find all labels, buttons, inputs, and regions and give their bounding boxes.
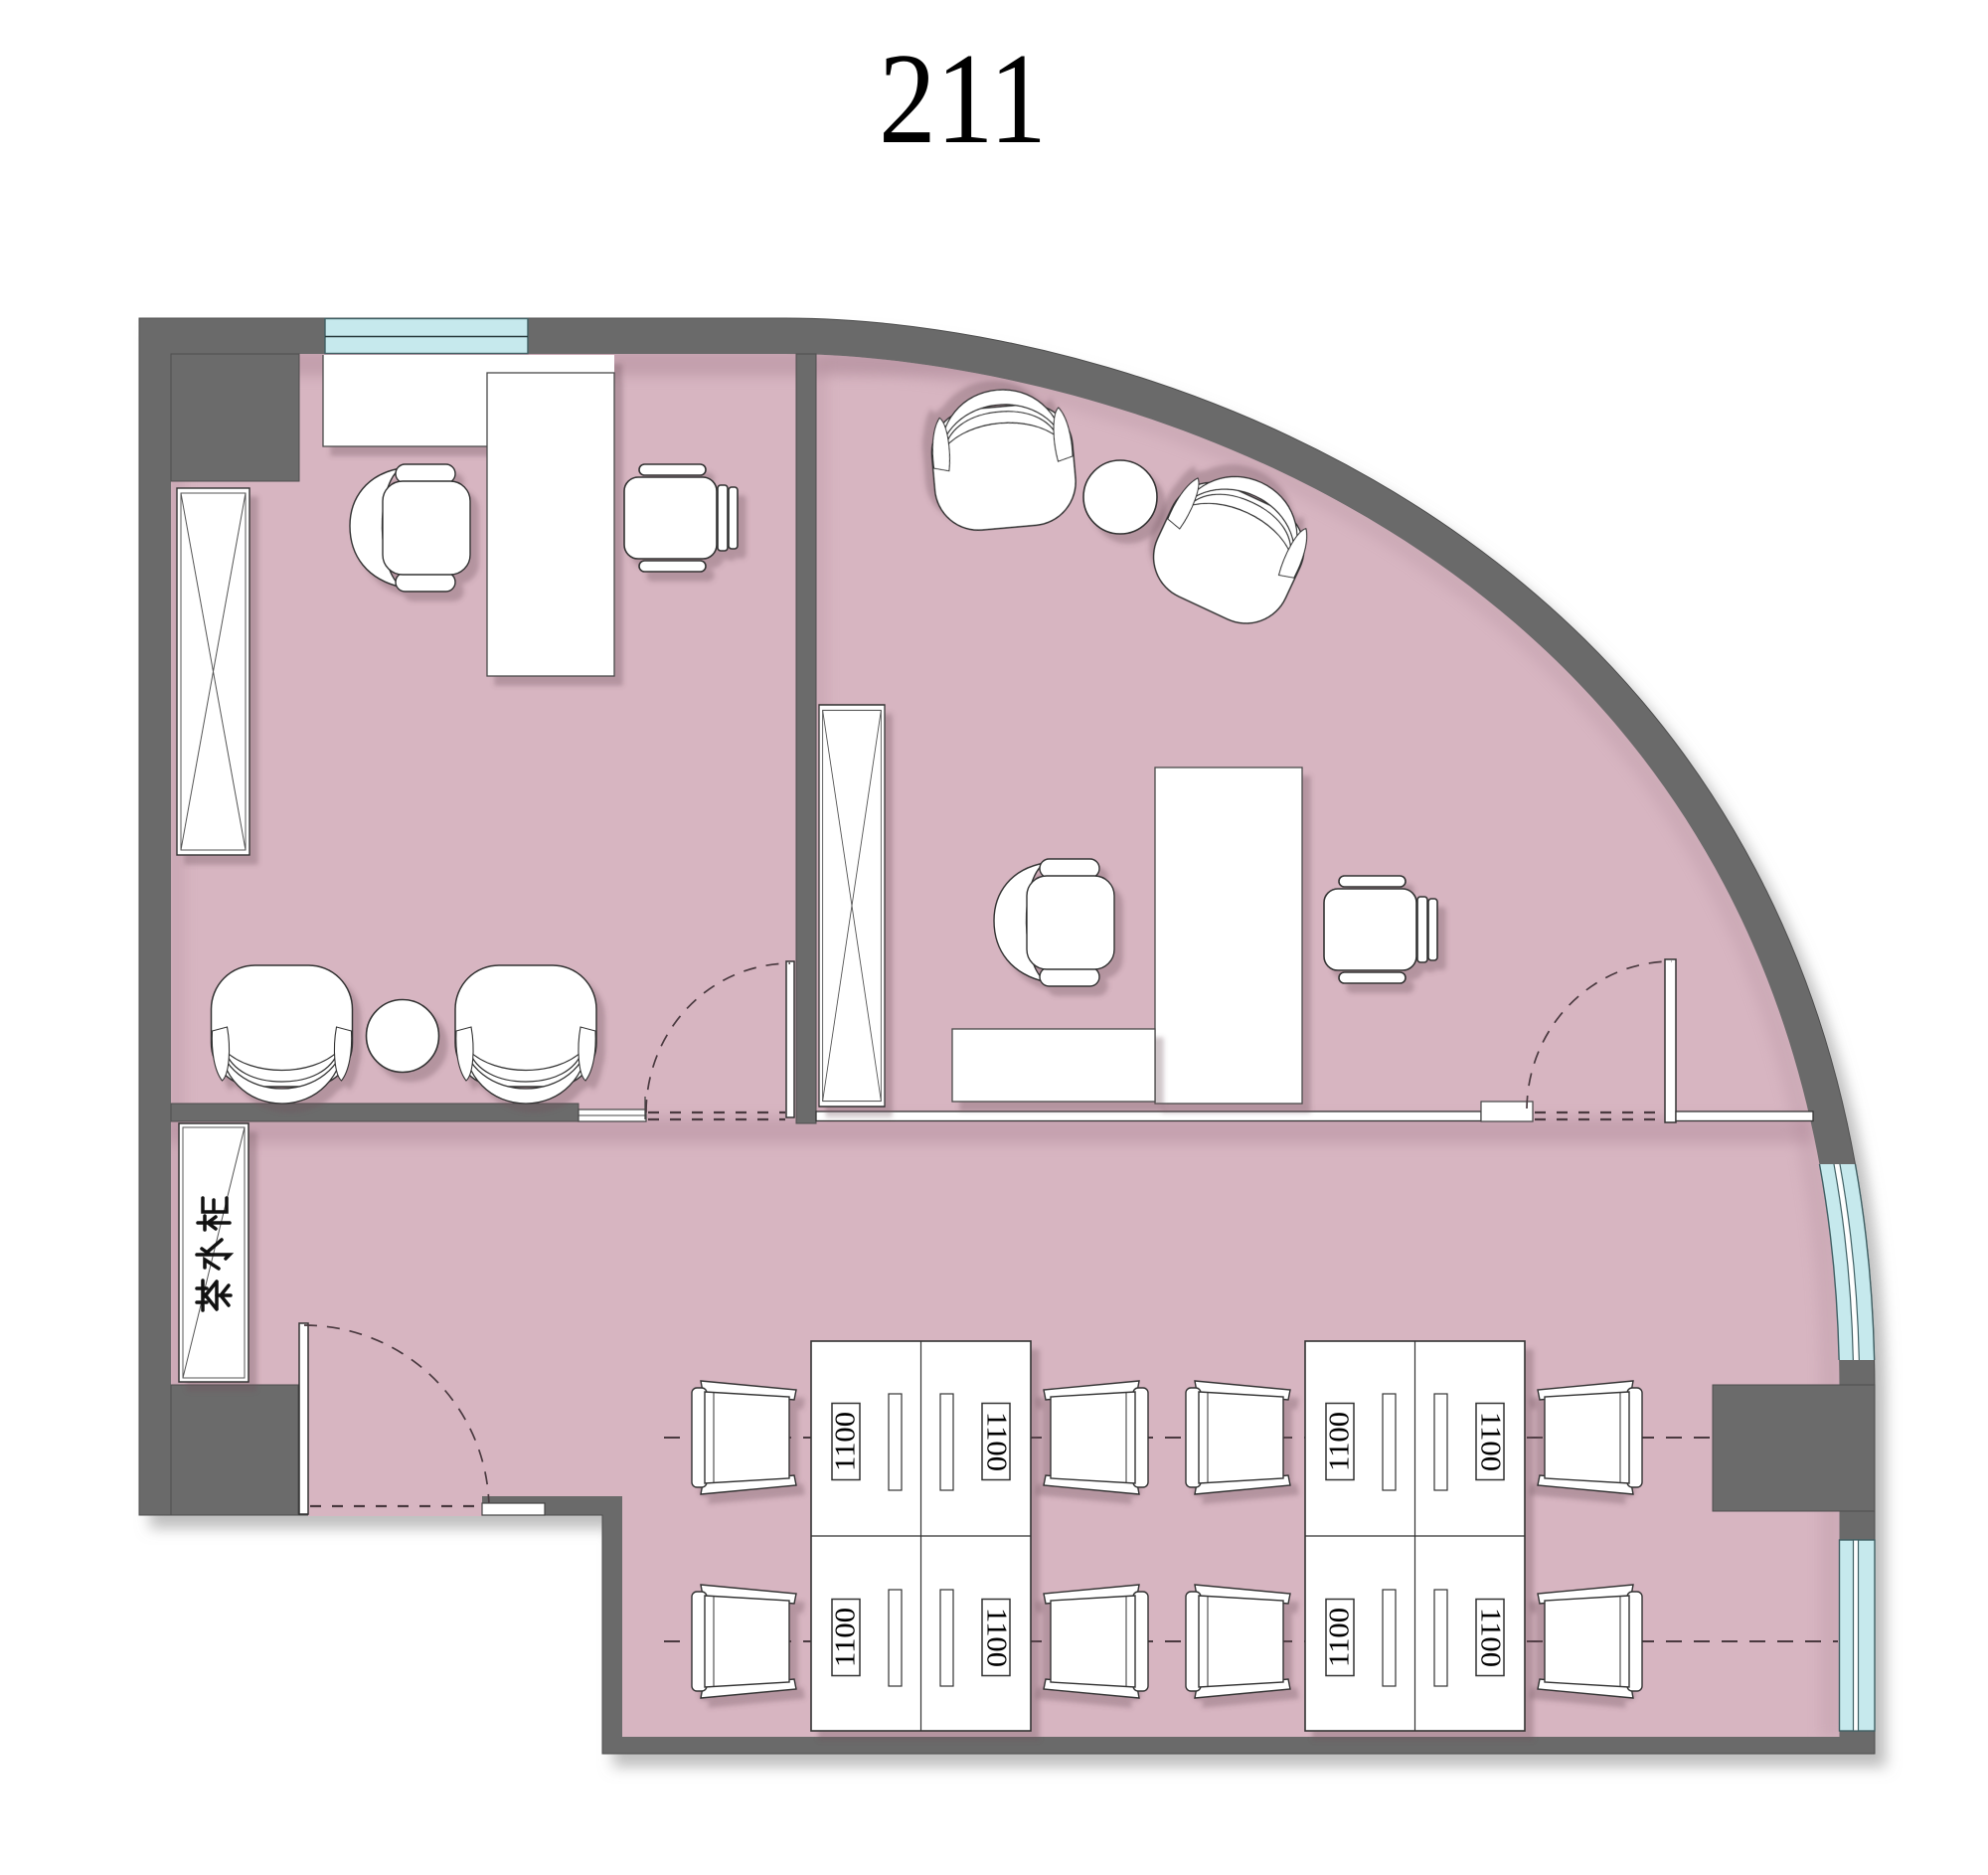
svg-text:211: 211 [879,27,1047,171]
